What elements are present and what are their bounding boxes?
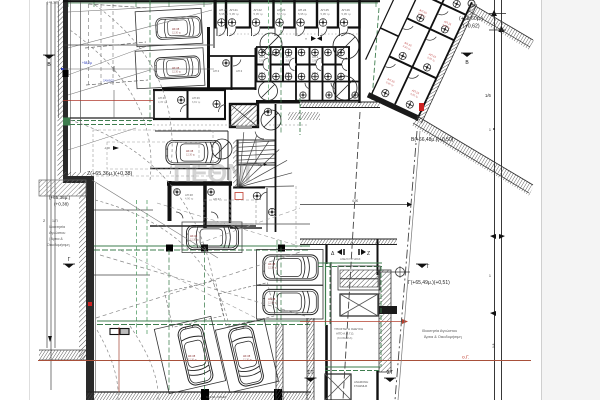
svg-text:ΑΝΕΛΚΥΣΤΗΡΑΣ: ΑΝΕΛΚΥΣΤΗΡΑΣ bbox=[340, 257, 361, 261]
svg-text:ΚΑΤΑΒ. ΟΧΗΜ.: ΚΑΤΑΒ. ΟΧΗΜ. bbox=[206, 395, 227, 399]
svg-text:ΘΣ.08: ΘΣ.08 bbox=[188, 354, 196, 358]
svg-text:9.8: 9.8 bbox=[492, 343, 496, 348]
svg-text:+58,2μ: +58,2μ bbox=[82, 61, 92, 65]
svg-text:12,30 τμ: 12,30 τμ bbox=[268, 266, 278, 269]
svg-text:1/Π: 1/Π bbox=[52, 219, 58, 223]
svg-text:3,80: 3,80 bbox=[259, 75, 265, 79]
svg-text:Υ: Υ bbox=[305, 37, 307, 41]
svg-text:3,80: 3,80 bbox=[286, 59, 292, 63]
svg-text:3,80: 3,80 bbox=[286, 75, 292, 79]
svg-text:(+65,36μ.): (+65,36μ.) bbox=[49, 195, 71, 200]
svg-text:(ΚΛΙΜΑΚΑ): (ΚΛΙΜΑΚΑ) bbox=[337, 336, 352, 340]
svg-text:Οικοδομήσιμη: Οικοδομήσιμη bbox=[47, 243, 70, 247]
svg-text:ΘΣ.08: ΘΣ.08 bbox=[172, 66, 180, 70]
svg-text:ΑΠ.3: ΑΠ.3 bbox=[213, 69, 220, 73]
svg-text:5,95 τμ: 5,95 τμ bbox=[342, 12, 351, 16]
svg-text:12,30 τμ: 12,30 τμ bbox=[172, 70, 182, 73]
svg-text:ΑΠ.1: ΑΠ.1 bbox=[312, 71, 319, 75]
svg-text:1: 1 bbox=[489, 128, 491, 132]
svg-text:ΘΣ.08: ΘΣ.08 bbox=[186, 149, 194, 153]
svg-text:ο.Γ.: ο.Γ. bbox=[462, 355, 469, 361]
svg-text:ΘΣ.08: ΘΣ.08 bbox=[172, 27, 180, 31]
svg-text:-1.00: -1.00 bbox=[104, 146, 110, 150]
svg-text:12,30 τμ: 12,30 τμ bbox=[268, 301, 278, 304]
svg-text:ΘΣ.08: ΘΣ.08 bbox=[268, 297, 276, 301]
svg-text:Άρτια & Οικοδομήσιμη: Άρτια & Οικοδομήσιμη bbox=[424, 335, 462, 339]
svg-text:ΘΣ.08: ΘΣ.08 bbox=[268, 262, 276, 266]
svg-text:5,95 τμ: 5,95 τμ bbox=[321, 12, 330, 16]
svg-text:ΑΠ.1: ΑΠ.1 bbox=[286, 55, 293, 59]
svg-text:3,80: 3,80 bbox=[259, 59, 265, 63]
svg-text:5,95 τμ: 5,95 τμ bbox=[254, 12, 263, 16]
svg-text:1: 1 bbox=[489, 274, 491, 278]
svg-text:12,30 τμ: 12,30 τμ bbox=[186, 153, 196, 156]
svg-text:ΣΤΑΘΜΗΣ: ΣΤΑΘΜΗΣ bbox=[354, 384, 368, 388]
svg-text:ΥΠΟΣΤΕΓΗ ΟΔΕΥΣΗ: ΥΠΟΣΤΕΓΗ ΟΔΕΥΣΗ bbox=[334, 327, 363, 331]
svg-text:ΑΠ.37: ΑΠ.37 bbox=[213, 197, 221, 201]
svg-text:5,95 τμ: 5,95 τμ bbox=[277, 12, 286, 16]
svg-text:4,90 τμ: 4,90 τμ bbox=[185, 197, 194, 201]
svg-text:12,30 τμ: 12,30 τμ bbox=[243, 358, 253, 361]
svg-text:ΘΣ.08: ΘΣ.08 bbox=[190, 234, 198, 238]
svg-text:3,80: 3,80 bbox=[312, 75, 318, 79]
svg-text:ΑΠ.1: ΑΠ.1 bbox=[312, 55, 319, 59]
svg-text:ΑΠ.1: ΑΠ.1 bbox=[259, 71, 266, 75]
svg-text:4,90: 4,90 bbox=[352, 199, 358, 203]
svg-text:(+0,62): (+0,62) bbox=[463, 24, 480, 30]
svg-text:Ζ: Ζ bbox=[367, 251, 370, 257]
svg-text:3,80: 3,80 bbox=[312, 59, 318, 63]
svg-text:ΑΠ.3: ΑΠ.3 bbox=[236, 69, 243, 73]
svg-text:5,95 τμ: 5,95 τμ bbox=[298, 12, 307, 16]
svg-text:1/6: 1/6 bbox=[485, 93, 491, 98]
svg-text:4,35 τμ: 4,35 τμ bbox=[158, 100, 167, 104]
svg-text:ΑΠΌ Α.Π.Γ.Ω.: ΑΠΌ Α.Π.Γ.Ω. bbox=[336, 332, 354, 336]
svg-text:Αγνώστου: Αγνώστου bbox=[49, 231, 65, 235]
svg-text:Γ: Γ bbox=[68, 257, 71, 263]
svg-text:12,30 τμ: 12,30 τμ bbox=[188, 358, 198, 361]
svg-text:5,95 τμ: 5,95 τμ bbox=[230, 12, 239, 16]
svg-text:+6,5: +6,5 bbox=[256, 163, 262, 167]
svg-text:ΑΠ.1: ΑΠ.1 bbox=[286, 71, 293, 75]
svg-text:ΣΤ: ΣΤ bbox=[307, 370, 313, 376]
svg-text:12,30 τμ: 12,30 τμ bbox=[172, 31, 182, 34]
svg-text:12,30 τμ: 12,30 τμ bbox=[190, 238, 200, 241]
svg-text:5,95 τμ: 5,95 τμ bbox=[219, 12, 228, 16]
svg-text:(+0,38): (+0,38) bbox=[54, 202, 69, 207]
svg-text:(+68,60μ.): (+68,60μ.) bbox=[459, 16, 483, 22]
svg-text:ΑΠ.1: ΑΠ.1 bbox=[259, 55, 266, 59]
svg-text:ΠΕΘΝΙ: ΠΕΘΝΙ bbox=[173, 158, 250, 188]
svg-text:ΑΠ.36: ΑΠ.36 bbox=[192, 96, 200, 100]
svg-text:ΣΤ: ΣΤ bbox=[387, 370, 393, 376]
svg-text:ΘΣ.08: ΘΣ.08 bbox=[243, 354, 251, 358]
svg-text:Ιδιοκτησία Αγνώστου: Ιδιοκτησία Αγνώστου bbox=[422, 329, 457, 333]
svg-text:Ζ(+65,36μ.)(+0,38): Ζ(+65,36μ.)(+0,38) bbox=[87, 171, 133, 177]
svg-text:Ιδιοκτησία: Ιδιοκτησία bbox=[49, 225, 65, 229]
svg-text:Β(+66,48μ.)(+0,50): Β(+66,48μ.)(+0,50) bbox=[411, 137, 454, 143]
svg-text:| Άρτια &: | Άρτια & bbox=[49, 237, 63, 241]
svg-text:ΞΑΝΘΟΣ: ΞΑΝΘΟΣ bbox=[103, 79, 114, 83]
svg-text:(+0,38): (+0,38) bbox=[47, 1, 58, 5]
svg-text:Γ: Γ bbox=[427, 264, 430, 270]
svg-text:Γ(+65,49μ.)(+0,51): Γ(+65,49μ.)(+0,51) bbox=[408, 280, 450, 286]
svg-text:ΑΠ.38: ΑΠ.38 bbox=[185, 193, 193, 197]
svg-text:6,81 τμ: 6,81 τμ bbox=[192, 100, 201, 104]
